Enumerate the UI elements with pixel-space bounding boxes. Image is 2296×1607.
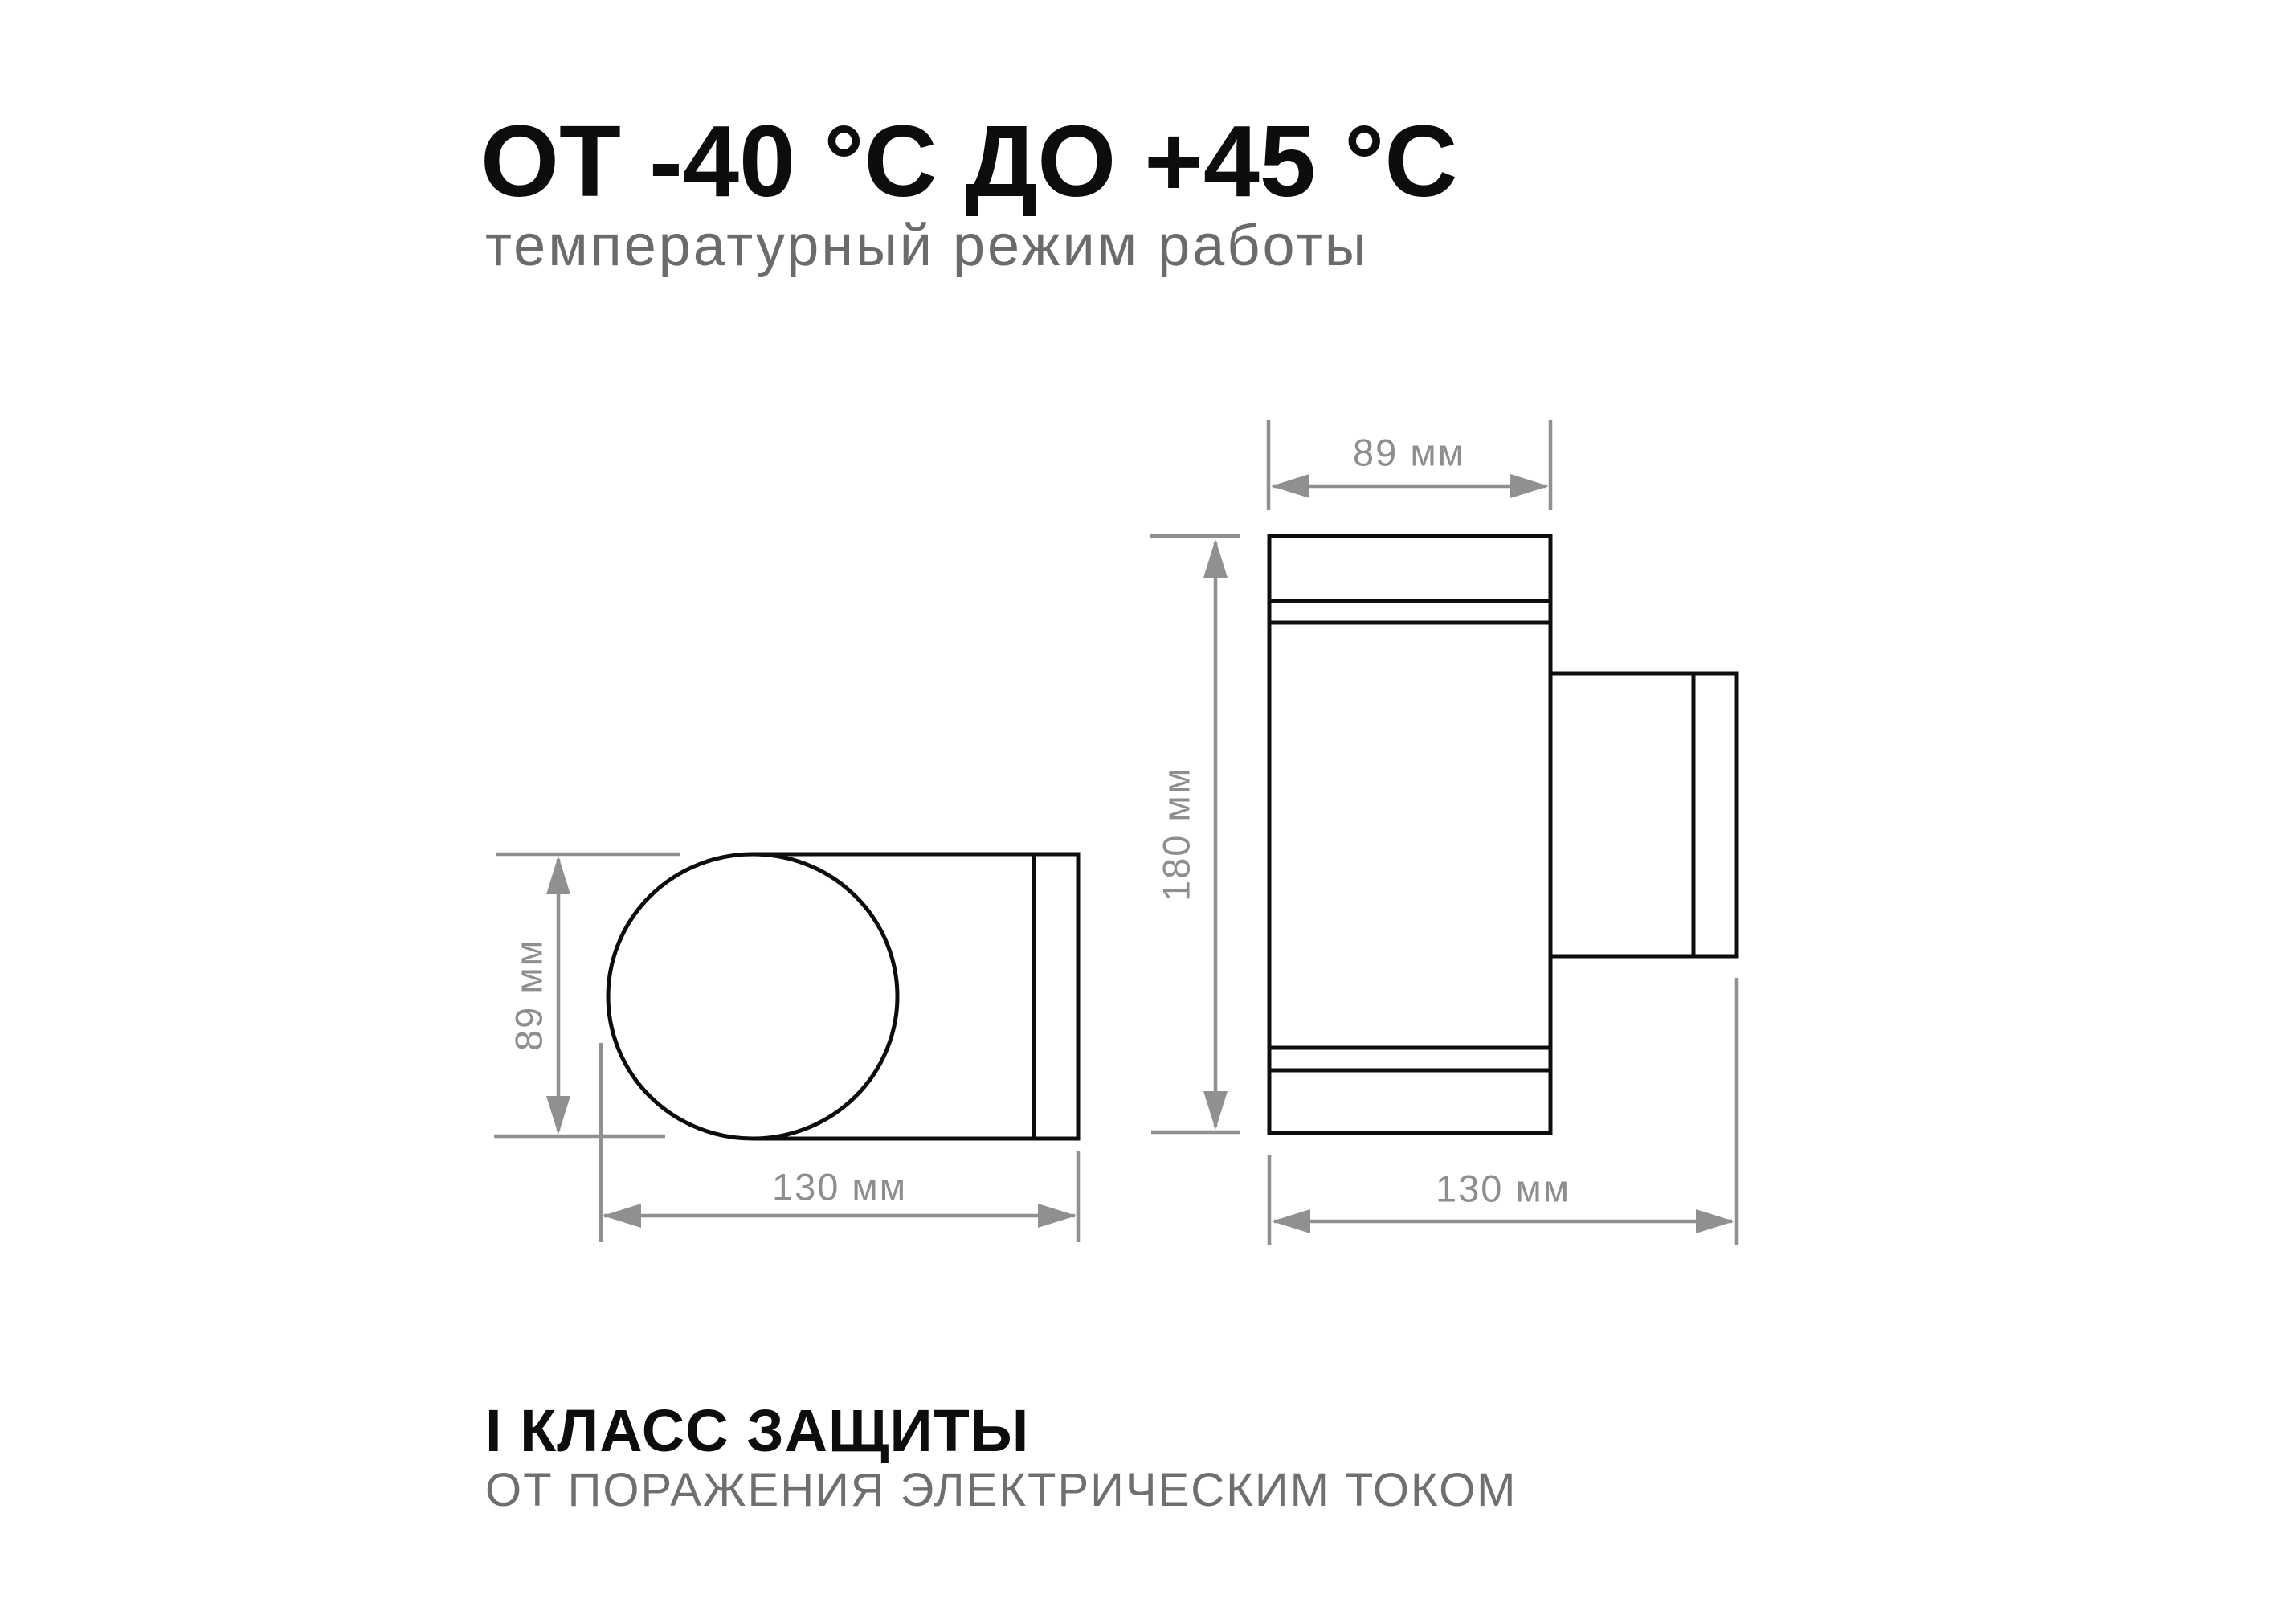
dimension-arrowhead — [1038, 1204, 1077, 1228]
dimension-arrowhead — [1203, 539, 1228, 578]
front-view-height-dimension-label: 180 мм — [1158, 767, 1195, 902]
technical-drawing — [0, 0, 2296, 1607]
dimension-arrowhead — [603, 1204, 641, 1228]
front-view — [1269, 536, 1737, 1133]
spec-sheet: ОТ -40 °С ДО +45 °С температурный режим … — [0, 0, 2296, 1607]
dimension-arrowhead — [1272, 1209, 1310, 1233]
side-view-width-dimension-label: 130 мм — [772, 1168, 907, 1206]
dimension-arrowhead — [546, 856, 570, 894]
dimension-arrowhead — [1203, 1091, 1228, 1130]
front-view-bracket-outline — [1550, 673, 1737, 956]
dimension-arrowhead — [1510, 474, 1549, 498]
front-view-body-outline — [1269, 536, 1550, 1133]
protection-class-subtitle: ОТ ПОРАЖЕНИЯ ЭЛЕКТРИЧЕСКИМ ТОКОМ — [485, 1467, 1518, 1514]
side-view — [608, 854, 1078, 1139]
dimension-arrowhead — [546, 1096, 570, 1135]
protection-class-title: I КЛАСС ЗАЩИТЫ — [485, 1401, 1029, 1461]
front-view-width-dimension-label: 89 мм — [1353, 434, 1465, 472]
side-view-height-dimension-label: 89 мм — [510, 938, 548, 1051]
front-view-depth-dimension-label: 130 мм — [1436, 1170, 1571, 1208]
dimension-arrowhead — [1271, 474, 1309, 498]
dimension-arrowhead — [1696, 1209, 1734, 1233]
side-view-lens-circle — [608, 854, 897, 1139]
